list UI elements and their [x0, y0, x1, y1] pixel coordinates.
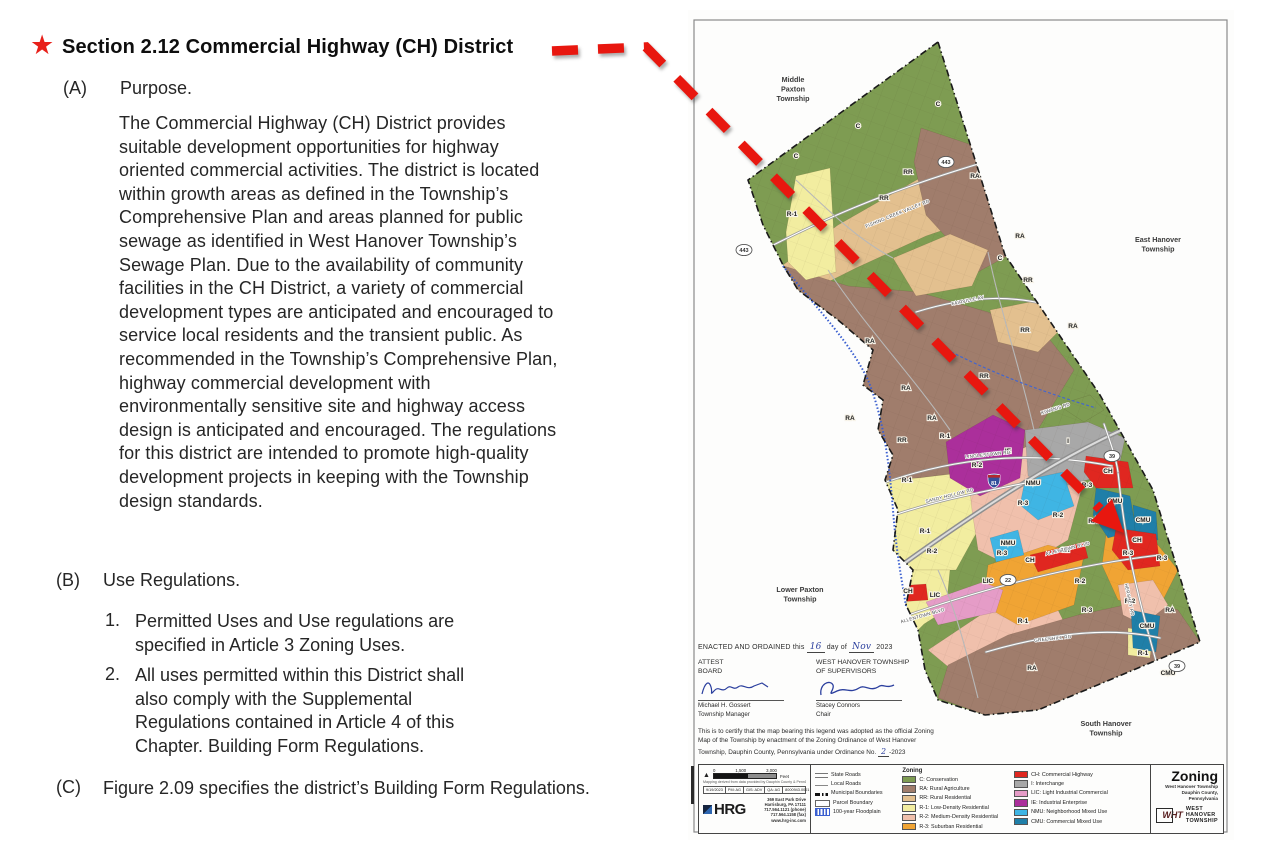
legend-zoning-item: C: Conservation	[902, 775, 1010, 784]
district-label: C	[794, 153, 799, 160]
legend-zoning-item: CMU: Commercial Mixed Use	[1014, 817, 1148, 826]
district-label: NMU	[1001, 540, 1016, 547]
route-number: 443	[941, 160, 950, 166]
interstate-number: 81	[991, 481, 997, 487]
legend-label: Parcel Boundary	[833, 800, 873, 806]
district-label: R-3	[1082, 482, 1093, 489]
zoning-swatch	[902, 823, 916, 831]
map-title-block: Zoning West Hanover Township Dauphin Cou…	[1150, 765, 1223, 833]
certification-text: This is to certify that the map bearing …	[698, 727, 936, 757]
manager-signature	[698, 678, 784, 700]
neighbor-township-label: Township	[1089, 729, 1123, 738]
route-number: 39	[1109, 454, 1115, 460]
list-item-1: Permitted Uses and Use regulations are s…	[135, 610, 480, 657]
district-label: CMU	[1136, 517, 1151, 524]
enactment-block: ENACTED AND ORDAINED this 16 day of Nov …	[698, 642, 948, 757]
map-title: Zoning	[1156, 768, 1218, 784]
item-label-c: (C)	[56, 777, 81, 798]
legend-zoning-item: IE: Industrial Enterprise	[1014, 798, 1148, 807]
district-label: RA	[1088, 518, 1098, 525]
zoning-swatch	[1014, 780, 1028, 788]
chair-title: Chair	[816, 711, 934, 719]
district-label: RR	[903, 169, 913, 176]
handwritten-month: Nov	[849, 642, 874, 653]
district-label: R-2	[972, 462, 983, 469]
legend-label: I: Interchange	[1031, 781, 1064, 787]
ordinance-text-panel: ★ Section 2.12 Commercial Highway (CH) D…	[0, 0, 680, 846]
zoning-swatch	[902, 795, 916, 803]
enacted-line: ENACTED AND ORDAINED this 16 day of Nov …	[698, 642, 948, 652]
handwritten-ordinance-number: 2	[878, 747, 889, 757]
legend-zoning-item: CH: Commercial Highway	[1014, 770, 1148, 779]
zoning-swatch	[1014, 790, 1028, 798]
legend-label: State Roads	[831, 772, 861, 778]
parcel-symbol-icon	[815, 800, 830, 807]
hrg-address: 369 East Park DriveHarrisburg, PA 171117…	[750, 797, 806, 823]
attest-label-2: BOARD	[698, 667, 816, 676]
list-number-2: 2.	[105, 664, 120, 685]
district-label: R-2	[1053, 512, 1064, 519]
district-label: LIC	[930, 592, 941, 599]
legend-symbol-item: State Roads	[815, 770, 896, 779]
legend-label: R-3: Suburban Residential	[919, 824, 982, 830]
item-label-b: (B)	[56, 570, 80, 591]
legend-zoning-col1: Zoning C: ConservationRA: Rural Agricult…	[898, 765, 1012, 833]
zoning-swatch	[902, 804, 916, 812]
legend-label: IE: Industrial Enterprise	[1031, 800, 1087, 806]
chair-signature	[816, 678, 902, 700]
revision-cells: 9/19/2023PM: AGGIS: ADVQA: AG8000943.000…	[703, 786, 806, 794]
route-number: 39	[1174, 664, 1180, 670]
north-arrow-icon: ▲	[703, 772, 710, 779]
zoning-swatch	[902, 785, 916, 793]
legend-zoning-col2: CH: Commercial HighwayI: InterchangeLIC:…	[1012, 765, 1150, 833]
zoning-swatch	[902, 776, 916, 784]
revision-cell: PM: AG	[726, 787, 744, 793]
district-label: R-1	[1138, 650, 1149, 657]
district-label: NMU	[1026, 480, 1041, 487]
supervisors-column: WEST HANOVER TOWNSHIP OF SUPERVISORS Sta…	[816, 658, 934, 719]
district-label: R-3	[1157, 555, 1168, 562]
zoning-legend-header: Zoning	[902, 768, 1010, 774]
district-label: CH	[1132, 537, 1142, 544]
district-label: CMU	[1108, 498, 1123, 505]
district-label: C	[936, 101, 941, 108]
hrg-logo-icon	[703, 805, 712, 814]
township-logo: WHT WESTHANOVERTOWNSHIP	[1156, 806, 1218, 825]
zoning-swatch	[1014, 809, 1028, 817]
district-label: R-1	[787, 211, 798, 218]
zoning-swatch	[1014, 799, 1028, 807]
district-label: RA	[1015, 233, 1025, 240]
scale-unit: Feet	[780, 774, 789, 779]
district-label: RR	[879, 195, 889, 202]
township-logo-text: TOWNSHIP	[1186, 818, 1218, 824]
route-number: 443	[739, 248, 748, 254]
legend-label: NMU: Neighborhood Mixed Use	[1031, 809, 1107, 815]
zoning-swatch	[1014, 771, 1028, 779]
district-label: C	[856, 123, 861, 130]
legend-symbol-item: Parcel Boundary	[815, 798, 896, 807]
neighbor-township-label: East Hanover	[1135, 235, 1181, 244]
district-label: RA	[1165, 607, 1175, 614]
list-number-1: 1.	[105, 610, 120, 631]
enacted-mid: day of	[827, 644, 847, 651]
flood-symbol-icon	[815, 808, 830, 816]
neighbor-township-label: Township	[776, 94, 810, 103]
revision-cell: GIS: ADV	[744, 787, 765, 793]
legend-zoning-item: RR: Rural Residential	[902, 794, 1010, 803]
district-label: RR	[979, 373, 989, 380]
legend-label: R-2: Medium-Density Residential	[919, 814, 998, 820]
legend-symbol-item: Local Roads	[815, 779, 896, 788]
zoning-swatch	[902, 814, 916, 822]
revision-cell: 9/19/2023	[704, 787, 726, 793]
scale-bar	[713, 773, 777, 779]
district-label: RR	[897, 437, 907, 444]
hrg-logo: HRG	[703, 801, 746, 818]
revision-cell: 8000943.0001	[783, 787, 811, 793]
district-label: R-3	[997, 550, 1008, 557]
legend-zoning-item: R-2: Medium-Density Residential	[902, 813, 1010, 822]
enacted-year: 2023	[876, 644, 892, 651]
legend-zoning-item: R-1: Low-Density Residential	[902, 803, 1010, 812]
legend-symbol-item: 100-year Floodplain	[815, 808, 896, 817]
legend-label: 100-year Floodplain	[833, 809, 881, 815]
district-label: R-3	[1123, 550, 1134, 557]
neighbor-township-label: Paxton	[781, 85, 805, 94]
township-logo-icon	[1156, 808, 1173, 823]
neighbor-township-label: South Hanover	[1080, 719, 1131, 728]
purpose-body: The Commercial Highway (CH) District pro…	[119, 112, 561, 513]
page: { "icons": {"star": "★", "north": "▲"}, …	[0, 0, 1280, 846]
legend-zoning-item: LIC: Light Industrial Commercial	[1014, 789, 1148, 798]
route-number: 22	[1005, 578, 1011, 584]
zoning-districts	[728, 40, 1208, 730]
local-symbol-icon	[815, 785, 828, 786]
district-label: R-2	[927, 548, 938, 555]
municipal-symbol-icon	[815, 793, 828, 796]
district-label: R-2	[1075, 578, 1086, 585]
legend-zoning-item: RA: Rural Agriculture	[902, 784, 1010, 793]
map-subtitle-2: Dauphin County, Pennsylvania	[1156, 790, 1218, 802]
use-regulations-heading: Use Regulations.	[103, 570, 240, 591]
legend-label: C: Conservation	[919, 777, 958, 783]
legend-label: RR: Rural Residential	[919, 795, 971, 801]
district-label: RA	[1027, 665, 1037, 672]
legend-label: RA: Rural Agriculture	[919, 786, 969, 792]
legend-label: Municipal Boundaries	[831, 790, 883, 796]
legend-zoning-item: R-3: Suburban Residential	[902, 822, 1010, 831]
district-label: R-3	[1018, 500, 1029, 507]
district-label: R-1	[940, 433, 951, 440]
manager-name: Michael H. Gossert	[698, 700, 784, 710]
district-label: RA	[1068, 323, 1078, 330]
zoning-swatch	[1014, 818, 1028, 826]
district-label: R-1	[920, 528, 931, 535]
legend-zoning-item: I: Interchange	[1014, 779, 1148, 788]
legend-label: CMU: Commercial Mixed Use	[1031, 819, 1102, 825]
star-icon: ★	[30, 32, 54, 59]
handwritten-day: 16	[807, 642, 825, 653]
district-label: RA	[901, 385, 911, 392]
neighbor-township-label: Lower Paxton	[776, 585, 823, 594]
scale-and-credits: ▲ 0 1,500 3,000 Feet Mapping derived fro…	[699, 765, 811, 833]
manager-title: Township Manager	[698, 711, 816, 719]
figure-reference-text: Figure 2.09 specifies the district’s Bui…	[103, 777, 598, 801]
legend-symbol-item: Municipal Boundaries	[815, 789, 896, 798]
district-label: RR	[1020, 327, 1030, 334]
chair-name: Stacey Connors	[816, 700, 902, 710]
purpose-heading: Purpose.	[120, 78, 192, 99]
district-label: R-1	[902, 477, 913, 484]
ordinance-suffix: -2023	[889, 749, 905, 756]
zoning-map-page: MiddlePaxtonTownshipEast HanoverTownship…	[688, 10, 1234, 840]
state-symbol-icon	[815, 773, 828, 778]
legend-zoning-item: NMU: Neighborhood Mixed Use	[1014, 808, 1148, 817]
legend-label: Local Roads	[831, 781, 861, 787]
attest-column: ATTEST BOARD Michael H. Gossert Township…	[698, 658, 816, 719]
legend-label: R-1: Low-Density Residential	[919, 805, 989, 811]
list-item-2: All uses permitted within this District …	[135, 664, 480, 758]
district-label: C	[998, 255, 1003, 262]
supervisors-label: WEST HANOVER TOWNSHIP	[816, 658, 934, 667]
attest-label: ATTEST	[698, 658, 816, 667]
district-label: CH	[1025, 557, 1035, 564]
legend-symbols: State RoadsLocal RoadsMunicipal Boundari…	[811, 765, 898, 833]
district-label: RA	[970, 173, 980, 180]
legend-label: LIC: Light Industrial Commercial	[1031, 790, 1108, 796]
revision-cell: QA: AG	[765, 787, 783, 793]
item-label-a: (A)	[63, 78, 87, 99]
district-label: RA	[927, 415, 937, 422]
district-label: R-1	[1018, 618, 1029, 625]
district-label: LIC	[983, 578, 994, 585]
legend-label: CH: Commercial Highway	[1031, 772, 1093, 778]
neighbor-township-label: Township	[783, 595, 817, 604]
neighbor-township-label: Middle	[782, 75, 805, 84]
district-label: I	[1067, 438, 1069, 445]
district-label: RR	[1023, 277, 1033, 284]
district-label: CH	[903, 588, 913, 595]
district-label: CMU	[1140, 623, 1155, 630]
enacted-text: ENACTED AND ORDAINED this	[698, 644, 805, 651]
data-credit: Mapping derived from data provided by Da…	[703, 780, 806, 784]
section-title: Section 2.12 Commercial Highway (CH) Dis…	[62, 36, 513, 59]
district-label: R-3	[1082, 607, 1093, 614]
scan-artifact	[691, 766, 694, 804]
hrg-address-line: www.hrg-inc.com	[750, 818, 806, 823]
district-label: RA	[865, 338, 875, 345]
supervisors-label-2: OF SUPERVISORS	[816, 667, 934, 676]
map-legend: ▲ 0 1,500 3,000 Feet Mapping derived fro…	[698, 764, 1224, 834]
neighbor-township-label: Township	[1141, 245, 1175, 254]
district-label: RA	[845, 415, 855, 422]
district-label: CH	[1103, 468, 1113, 475]
